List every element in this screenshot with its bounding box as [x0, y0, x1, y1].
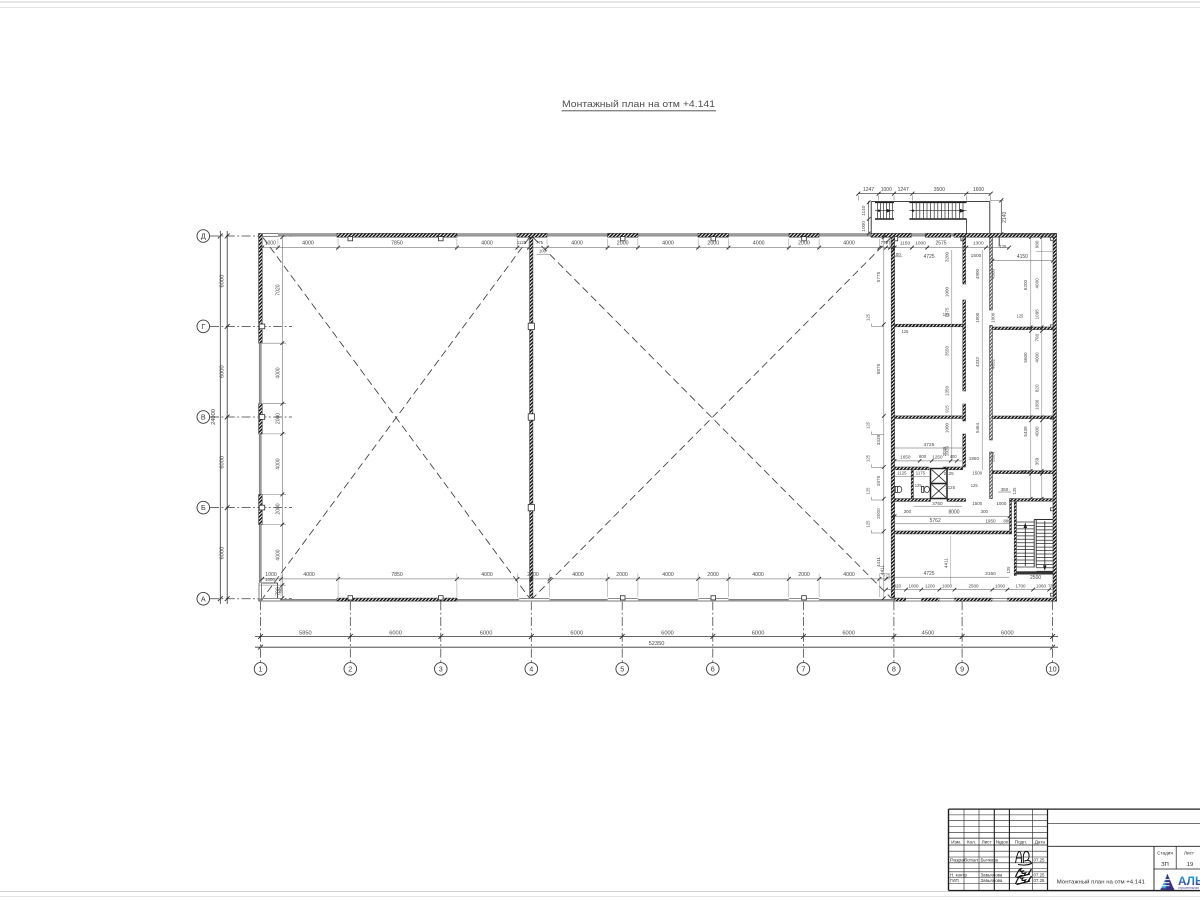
svg-text:2000: 2000: [876, 508, 881, 519]
svg-text:4000: 4000: [1034, 278, 1039, 289]
svg-text:125: 125: [865, 520, 870, 528]
svg-text:Дата: Дата: [1035, 839, 1046, 844]
svg-text:4000: 4000: [275, 458, 281, 469]
svg-text:07.25: 07.25: [1034, 878, 1046, 883]
svg-text:4000: 4000: [572, 572, 584, 578]
svg-text:2000: 2000: [275, 413, 281, 424]
svg-text:24000: 24000: [211, 409, 217, 425]
svg-text:Разработал: Разработал: [950, 857, 979, 862]
svg-text:4632: 4632: [991, 358, 996, 369]
svg-text:3750: 3750: [932, 501, 943, 506]
svg-text:4000: 4000: [662, 572, 674, 578]
svg-text:1095: 1095: [1034, 309, 1039, 320]
svg-text:19: 19: [1187, 862, 1193, 868]
svg-text:1060: 1060: [1036, 584, 1047, 589]
svg-text:125: 125: [865, 313, 870, 321]
svg-text:6000: 6000: [480, 630, 493, 636]
svg-text:6000: 6000: [570, 630, 583, 636]
svg-text:1600: 1600: [973, 187, 984, 193]
svg-text:1000: 1000: [915, 241, 926, 247]
svg-text:6000: 6000: [220, 456, 226, 469]
svg-text:Н. контр: Н. контр: [950, 872, 967, 877]
svg-text:6000: 6000: [220, 365, 226, 378]
svg-text:6000: 6000: [842, 630, 855, 636]
svg-text:4000: 4000: [752, 572, 764, 578]
svg-text:2000: 2000: [798, 572, 810, 578]
svg-text:1975: 1975: [876, 475, 881, 486]
svg-text:775: 775: [886, 241, 894, 246]
svg-text:Завьялова: Завьялова: [981, 878, 1003, 883]
svg-text:1175: 1175: [916, 470, 926, 475]
svg-text:1000: 1000: [996, 501, 1007, 506]
svg-text:5775: 5775: [876, 271, 881, 282]
svg-text:350: 350: [1001, 487, 1009, 492]
svg-text:Монтажный план на отм +4.141: Монтажный план на отм +4.141: [562, 99, 715, 109]
svg-text:6000: 6000: [220, 275, 226, 288]
svg-text:1080: 1080: [1034, 399, 1039, 410]
svg-text:Кол.: Кол.: [967, 839, 976, 844]
svg-text:700: 700: [1034, 333, 1039, 341]
svg-text:1500: 1500: [971, 253, 982, 259]
svg-text:4411: 4411: [944, 558, 949, 568]
svg-text:820: 820: [1034, 384, 1039, 392]
svg-text:775: 775: [883, 572, 891, 577]
svg-text:4411: 4411: [876, 557, 881, 567]
svg-text:07.25: 07.25: [1034, 857, 1046, 862]
svg-text:1950: 1950: [969, 456, 980, 461]
svg-text:1500: 1500: [972, 501, 983, 506]
svg-text:2000: 2000: [707, 572, 719, 578]
svg-text:1300: 1300: [973, 241, 984, 247]
svg-text:1000: 1000: [945, 286, 950, 297]
svg-text:1125: 1125: [897, 470, 907, 475]
svg-text:5584: 5584: [991, 451, 996, 462]
svg-text:2000: 2000: [617, 240, 629, 246]
svg-text:3550: 3550: [945, 345, 950, 356]
svg-text:1000: 1000: [945, 422, 950, 433]
svg-text:3200: 3200: [945, 251, 950, 262]
svg-text:125: 125: [865, 487, 870, 495]
svg-text:2125: 2125: [944, 471, 955, 476]
svg-text:125: 125: [943, 312, 951, 317]
svg-text:ГИП: ГИП: [950, 878, 959, 883]
svg-text:5600: 5600: [1023, 352, 1028, 363]
svg-text:1000: 1000: [881, 187, 892, 193]
svg-text:4150: 4150: [1017, 254, 1028, 260]
svg-text:4500: 4500: [922, 630, 935, 636]
svg-text:2140: 2140: [1002, 212, 1008, 223]
svg-text:В: В: [201, 413, 206, 422]
svg-text:1125: 1125: [517, 240, 527, 245]
svg-text:1000: 1000: [975, 312, 980, 323]
svg-text:2500: 2500: [968, 584, 979, 589]
svg-text:Изм.: Изм.: [951, 839, 961, 844]
svg-text:125: 125: [1006, 566, 1011, 574]
svg-text:4000: 4000: [571, 240, 583, 246]
svg-text:125: 125: [971, 483, 979, 488]
svg-text:1: 1: [259, 664, 263, 673]
svg-text:915: 915: [945, 405, 950, 413]
svg-text:1000: 1000: [265, 240, 276, 246]
svg-text:3339: 3339: [876, 434, 881, 445]
svg-text:9: 9: [960, 664, 964, 673]
svg-text:4000: 4000: [1034, 426, 1039, 437]
svg-text:780: 780: [278, 586, 283, 594]
svg-text:4000: 4000: [843, 240, 855, 246]
svg-text:800: 800: [919, 454, 927, 459]
svg-text:4000: 4000: [481, 240, 493, 246]
svg-text:1000: 1000: [995, 584, 1006, 589]
svg-text:07.25: 07.25: [1034, 872, 1046, 877]
svg-text:125: 125: [865, 454, 870, 462]
svg-text:400: 400: [950, 454, 958, 459]
svg-text:Монтажный план на отм +4.141: Монтажный план на отм +4.141: [1057, 878, 1145, 885]
svg-text:300: 300: [904, 509, 912, 514]
svg-text:4725: 4725: [923, 254, 934, 260]
svg-text:1000: 1000: [991, 312, 996, 323]
svg-text:Подп.: Подп.: [1015, 839, 1027, 844]
svg-text:125: 125: [999, 244, 1007, 249]
svg-text:10: 10: [1049, 664, 1057, 673]
svg-text:строительная компания: строительная компания: [1178, 886, 1200, 890]
svg-text:4000: 4000: [662, 240, 674, 246]
svg-text:6200: 6200: [1023, 279, 1028, 290]
svg-text:125: 125: [865, 421, 870, 429]
svg-text:ЗП: ЗП: [1161, 862, 1169, 868]
svg-text:125: 125: [902, 329, 910, 334]
svg-text:2000: 2000: [707, 240, 719, 246]
svg-text:4000: 4000: [481, 572, 493, 578]
svg-text:1000: 1000: [908, 584, 919, 589]
svg-text:980: 980: [1034, 240, 1039, 248]
svg-text:1000: 1000: [265, 577, 275, 582]
svg-text:2000: 2000: [527, 572, 539, 578]
svg-text:2500: 2500: [1030, 575, 1041, 581]
svg-text:4332: 4332: [975, 356, 980, 367]
svg-text:6000: 6000: [1001, 630, 1014, 636]
svg-text:359: 359: [1034, 457, 1039, 465]
svg-text:1140: 1140: [861, 205, 867, 216]
svg-text:300: 300: [981, 509, 989, 514]
svg-text:1350: 1350: [945, 385, 950, 396]
svg-text:7: 7: [801, 664, 805, 673]
svg-text:125: 125: [1012, 487, 1017, 495]
svg-text:2000: 2000: [616, 572, 628, 578]
svg-text:2039: 2039: [942, 446, 947, 456]
svg-text:2125: 2125: [945, 485, 955, 490]
svg-text:1320: 1320: [891, 584, 902, 589]
svg-text:4000: 4000: [275, 367, 281, 378]
svg-text:6000: 6000: [752, 630, 765, 636]
svg-text:5762: 5762: [930, 518, 941, 524]
svg-text:7850: 7850: [391, 572, 403, 578]
svg-text:125: 125: [1020, 469, 1028, 474]
svg-text:Лист: Лист: [1184, 850, 1195, 855]
svg-text:8000: 8000: [948, 510, 959, 516]
svg-text:Б: Б: [201, 503, 206, 512]
svg-text:1150: 1150: [900, 241, 911, 247]
svg-text:Лист: Лист: [982, 839, 993, 844]
svg-text:1700: 1700: [1015, 584, 1026, 589]
svg-text:Бычкова: Бычкова: [981, 857, 999, 862]
svg-text:4000: 4000: [275, 549, 281, 560]
svg-text:52350: 52350: [649, 641, 665, 647]
svg-text:5464: 5464: [975, 422, 980, 433]
svg-text:8: 8: [892, 664, 896, 673]
svg-text:3: 3: [439, 664, 443, 673]
svg-text:1247: 1247: [863, 187, 874, 193]
svg-text:2000: 2000: [798, 240, 810, 246]
svg-text:4900: 4900: [975, 268, 980, 279]
svg-text:Д: Д: [201, 232, 206, 241]
svg-text:4000: 4000: [303, 572, 315, 578]
svg-text:А: А: [201, 594, 206, 603]
svg-text:Стадия: Стадия: [1157, 850, 1173, 855]
svg-text:880: 880: [1003, 518, 1011, 523]
svg-text:4000: 4000: [302, 240, 314, 246]
svg-text:7850: 7850: [391, 240, 403, 246]
svg-text:2575: 2575: [935, 241, 946, 247]
svg-text:1000: 1000: [861, 221, 867, 232]
svg-text:775: 775: [536, 240, 544, 245]
svg-text:Завьялова: Завьялова: [981, 872, 1003, 877]
svg-text:6: 6: [711, 664, 715, 673]
svg-text:1500: 1500: [972, 471, 983, 476]
svg-text:2: 2: [348, 664, 352, 673]
svg-text:6000: 6000: [220, 547, 226, 560]
svg-text:4000: 4000: [1034, 352, 1039, 363]
svg-text:1000: 1000: [942, 584, 953, 589]
svg-text:4725: 4725: [923, 442, 934, 448]
svg-text:6000: 6000: [661, 630, 674, 636]
svg-text:5: 5: [620, 664, 624, 673]
svg-text:4900: 4900: [991, 268, 996, 279]
svg-text:3150: 3150: [985, 571, 996, 577]
svg-text:Г: Г: [201, 322, 205, 331]
svg-text:4000: 4000: [843, 572, 855, 578]
svg-text:125: 125: [915, 483, 923, 488]
svg-text:6000: 6000: [389, 630, 402, 636]
svg-text:1950: 1950: [985, 518, 996, 523]
svg-text:780: 780: [1048, 584, 1056, 589]
svg-text:5439: 5439: [1023, 426, 1028, 437]
svg-text:125: 125: [1016, 314, 1024, 319]
svg-text:5875: 5875: [876, 363, 881, 374]
svg-text:4725: 4725: [923, 571, 934, 577]
svg-text:2000: 2000: [275, 503, 281, 514]
svg-text:100: 100: [893, 252, 901, 257]
svg-text:3500: 3500: [934, 187, 945, 193]
svg-text:1247: 1247: [898, 187, 909, 193]
svg-text:№док: №док: [996, 839, 1009, 844]
svg-text:5850: 5850: [299, 630, 312, 636]
svg-text:4000: 4000: [753, 240, 765, 246]
svg-text:1200: 1200: [925, 584, 936, 589]
svg-text:7020: 7020: [275, 284, 281, 295]
svg-text:4: 4: [529, 664, 533, 673]
svg-text:1650: 1650: [900, 455, 911, 460]
